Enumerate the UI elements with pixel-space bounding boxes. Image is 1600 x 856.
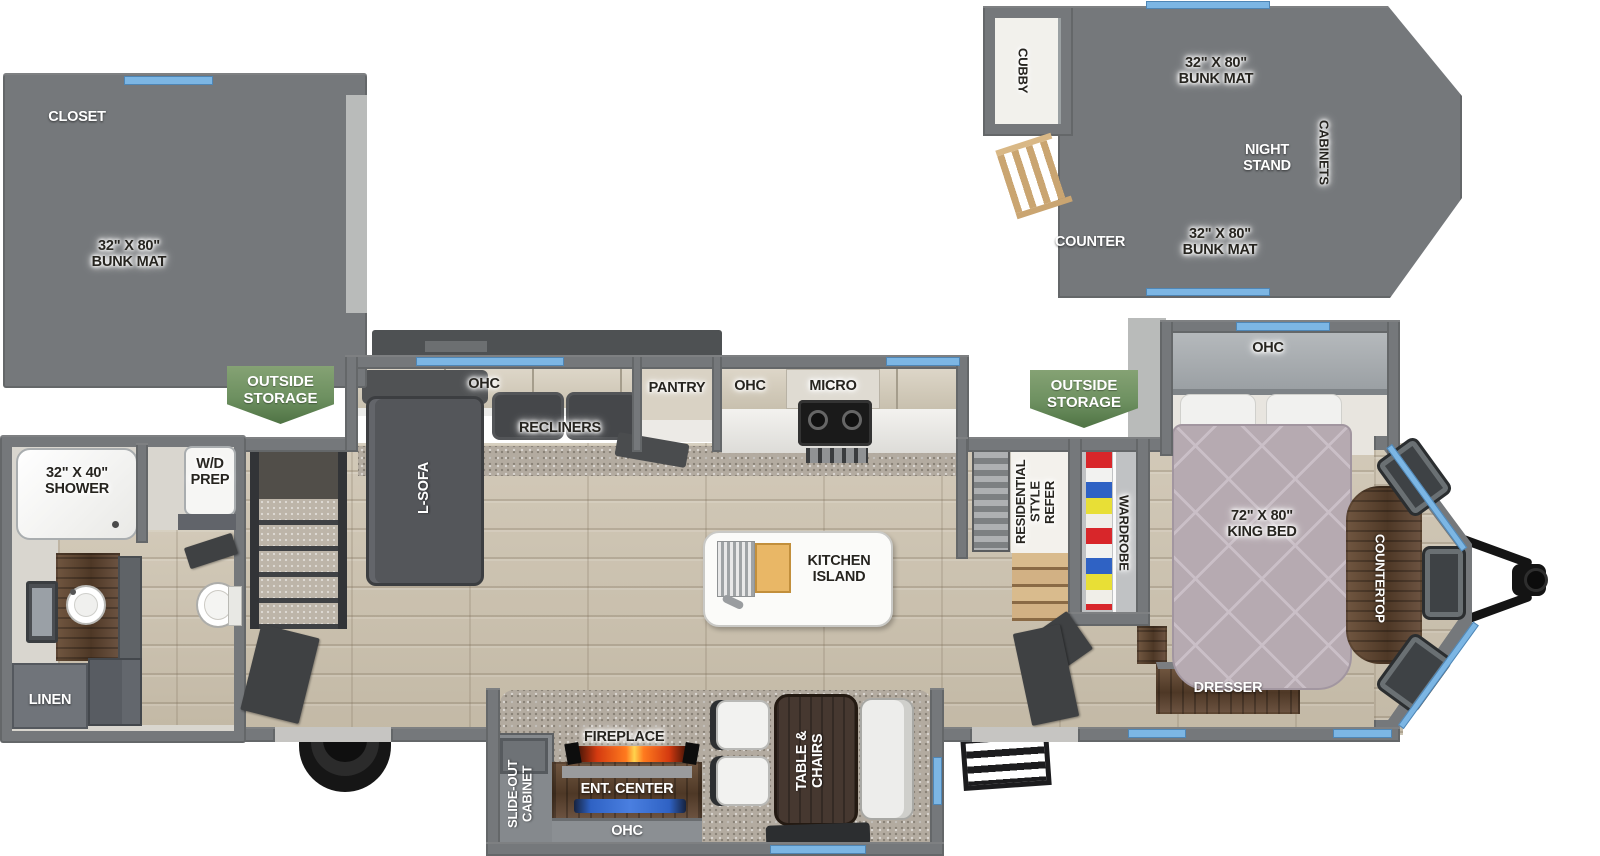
vanity-side-cabinet	[118, 556, 142, 660]
bedroom-step	[1012, 587, 1070, 604]
window	[1236, 322, 1330, 331]
ent-center-label: ENT. CENTER	[580, 781, 674, 797]
wardrobe-bottom-wall	[1068, 612, 1150, 626]
pantry-label: PANTRY	[640, 380, 714, 396]
outside-storage-label: OUTSIDE STORAGE	[227, 373, 334, 408]
hitch-ball	[1524, 568, 1548, 592]
entry-threshold	[970, 727, 1078, 742]
bedroom-step	[1012, 570, 1070, 587]
island-cutting-board	[755, 543, 791, 593]
wardrobe-label: WARDROBE	[1116, 488, 1131, 578]
vanity-sink-bowl	[74, 593, 98, 617]
outside-storage-badge: OUTSIDE STORAGE	[227, 366, 334, 424]
entry-threshold	[275, 727, 393, 742]
refer-wall	[956, 437, 968, 559]
stairs-landing	[259, 447, 338, 499]
floorplan: CLOSET 32" X 80" BUNK MAT OUTSIDE STORAG…	[0, 0, 1600, 856]
l-sofa-label: L-SOFA	[416, 448, 432, 528]
linen-counter	[88, 658, 142, 726]
night-stand-label: NIGHT STAND	[1230, 142, 1304, 174]
window	[1146, 288, 1270, 296]
king-bed	[1172, 424, 1352, 690]
dresser-label: DRESSER	[1178, 680, 1278, 696]
fireplace	[574, 746, 690, 762]
ent-center-shelf	[562, 766, 692, 778]
window	[933, 757, 942, 805]
stair-tread	[259, 499, 338, 525]
stove-vent	[806, 448, 868, 463]
king-bed-label: 72" X 80" KING BED	[1192, 508, 1332, 540]
stair-tread	[259, 603, 338, 629]
kitchen-island-label: KITCHEN ISLAND	[795, 553, 883, 585]
window	[886, 357, 960, 366]
refrigerator	[972, 450, 1010, 552]
stove-burner	[842, 410, 862, 430]
window	[1333, 729, 1392, 738]
counter-label: COUNTER	[1048, 234, 1132, 250]
stair-tread	[259, 577, 338, 603]
loft-left-bunk-label: 32" X 80" BUNK MAT	[59, 238, 199, 270]
bedroom-ohc-label: OHC	[1238, 340, 1298, 356]
shower-drain	[112, 521, 119, 528]
stair-rail	[338, 447, 347, 629]
cabinets-label: CABINETS	[1316, 112, 1331, 192]
nose-window	[1422, 546, 1466, 620]
wardrobe-wall	[1068, 437, 1082, 625]
dining-chair	[716, 756, 770, 806]
wd-shelf	[178, 514, 236, 530]
wall-connector	[345, 355, 358, 452]
fireplace-label: FIREPLACE	[584, 729, 660, 745]
stove-burner	[808, 410, 828, 430]
cubby-label: CUBBY	[1015, 40, 1030, 102]
bed-slide-wall	[1160, 320, 1173, 456]
window	[1146, 1, 1270, 9]
pantry-wall	[632, 355, 642, 452]
wardrobe-wall	[1136, 437, 1150, 625]
dinette-wall	[486, 842, 944, 856]
loft-right-bunk-top-label: 32" X 80" BUNK MAT	[1146, 55, 1286, 87]
stair-tread	[259, 525, 338, 551]
wardrobe-clothes	[1086, 452, 1112, 610]
vanity-faucet	[70, 589, 76, 595]
window	[770, 845, 866, 854]
outside-storage-badge: OUTSIDE STORAGE	[1030, 370, 1138, 428]
pantry-wall	[712, 355, 722, 452]
window	[1128, 729, 1186, 738]
stair-rail	[250, 447, 259, 629]
shower-label: 32" X 40" SHOWER	[28, 465, 126, 497]
tv	[574, 799, 686, 813]
bottom-wall	[942, 727, 972, 742]
refer-label: RESIDENTIAL STYLE REFER	[1014, 458, 1058, 546]
slide-out-topper-vent	[425, 341, 487, 352]
bedroom-step	[1012, 553, 1070, 570]
window	[124, 76, 213, 85]
loft-right-bunk-bottom-label: 32" X 80" BUNK MAT	[1150, 226, 1290, 258]
bed-slide-wall	[1387, 320, 1400, 456]
recliners-label: RECLINERS	[505, 420, 615, 436]
linen-label: LINEN	[20, 692, 80, 708]
table-chairs-label: TABLE & CHAIRS	[794, 722, 826, 800]
stair-tread	[259, 551, 338, 577]
mirror-glass	[32, 588, 52, 636]
slide-out-cabinet-label: SLIDE-OUT CABINET	[506, 758, 535, 830]
bottom-wall	[391, 727, 491, 742]
bathroom-partition	[136, 443, 148, 543]
closet-label: CLOSET	[22, 109, 132, 125]
micro-label: MICRO	[792, 378, 874, 394]
toilet-tank	[228, 586, 242, 626]
window	[416, 357, 564, 366]
living-ohc-label: OHC	[454, 376, 514, 392]
dinette-wall	[486, 688, 500, 856]
countertop-label: COUNTERTOP	[1372, 528, 1387, 628]
top-wall	[233, 437, 357, 452]
dining-chair	[716, 700, 770, 750]
dining-bench	[860, 698, 914, 820]
kitchen-ohc-label: OHC	[726, 378, 774, 394]
loft-left-outer-wall	[346, 95, 367, 313]
island-sink	[717, 541, 755, 597]
outside-storage-label: OUTSIDE STORAGE	[1030, 377, 1138, 412]
dinette-ohc-label: OHC	[600, 823, 654, 839]
wd-prep-label: W/D PREP	[182, 456, 238, 488]
bedroom-nightstand	[1137, 626, 1167, 664]
